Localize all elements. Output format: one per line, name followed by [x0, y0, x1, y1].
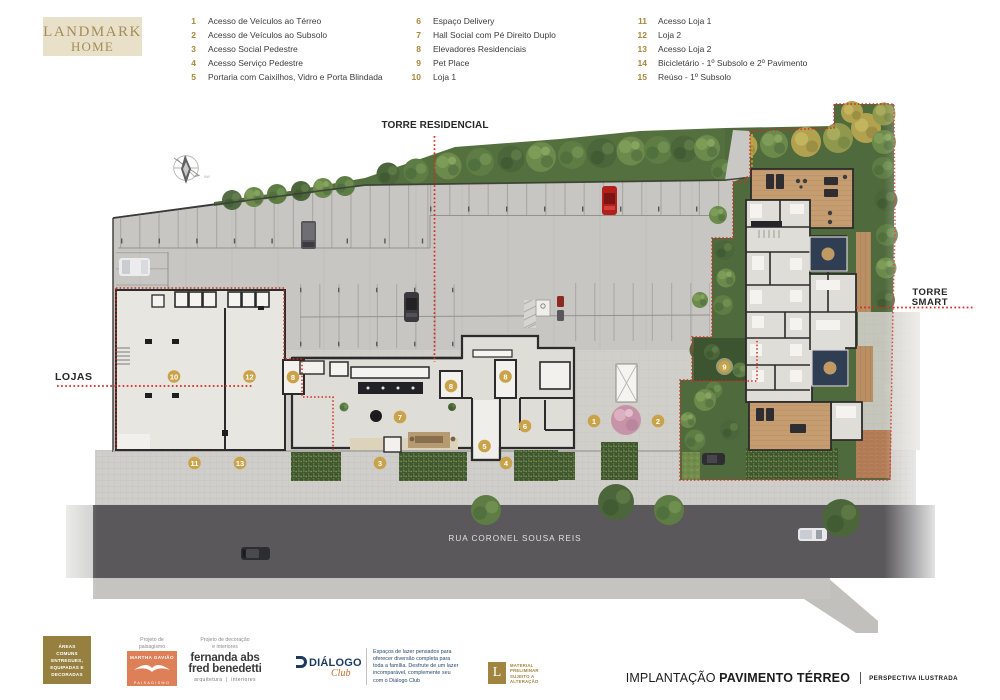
svg-text:11: 11 — [191, 459, 199, 468]
svg-text:2: 2 — [656, 417, 660, 426]
svg-text:3: 3 — [378, 459, 382, 468]
svg-text:5: 5 — [482, 442, 486, 451]
svg-text:8: 8 — [503, 373, 507, 382]
svg-text:13: 13 — [236, 459, 244, 468]
svg-text:8: 8 — [291, 373, 295, 382]
svg-text:RUA CORONEL SOUSA REIS: RUA CORONEL SOUSA REIS — [448, 534, 581, 543]
svg-text:8: 8 — [449, 382, 453, 391]
svg-text:TORRE RESIDENCIAL: TORRE RESIDENCIAL — [381, 120, 488, 131]
svg-text:1: 1 — [592, 417, 596, 426]
svg-text:12: 12 — [245, 373, 253, 382]
svg-text:SMART: SMART — [912, 297, 948, 308]
svg-text:LOJAS: LOJAS — [55, 371, 93, 383]
svg-text:9: 9 — [722, 363, 726, 372]
svg-text:10: 10 — [170, 373, 178, 382]
svg-text:7: 7 — [398, 413, 402, 422]
svg-text:6: 6 — [523, 422, 527, 431]
svg-text:NW: NW — [204, 175, 210, 179]
svg-text:Club: Club — [331, 668, 350, 679]
